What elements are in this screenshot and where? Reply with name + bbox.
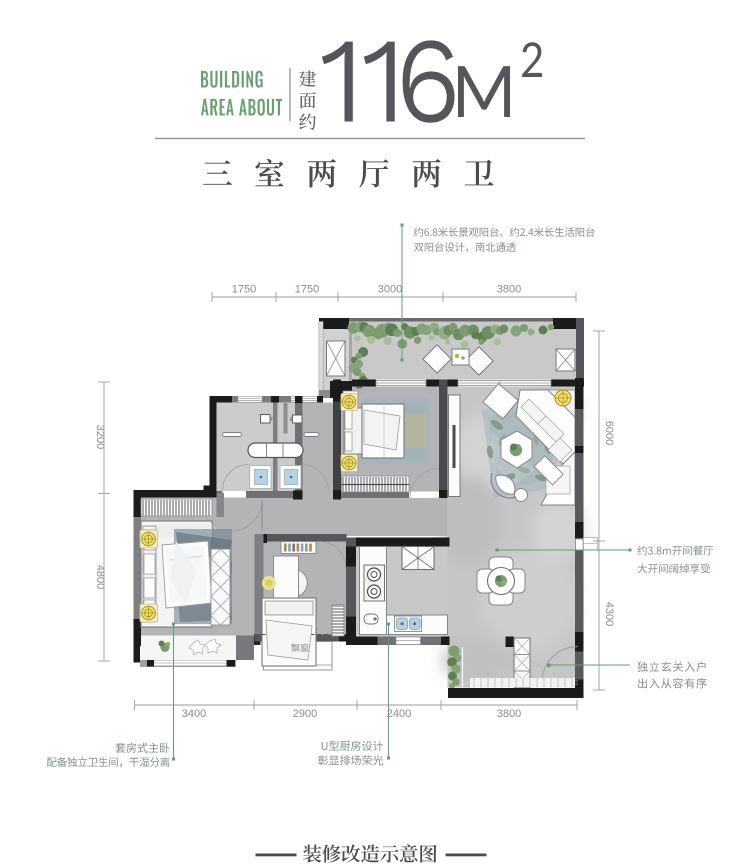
svg-text:1750: 1750 (232, 284, 256, 296)
svg-text:3800: 3800 (497, 708, 521, 720)
svg-text:3200: 3200 (94, 425, 106, 449)
svg-text:4300: 4300 (603, 602, 615, 626)
svg-text:2400: 2400 (387, 708, 411, 720)
svg-text:4800: 4800 (94, 565, 106, 589)
svg-text:1750: 1750 (295, 284, 319, 296)
svg-text:3800: 3800 (497, 284, 521, 296)
svg-text:2900: 2900 (293, 708, 317, 720)
svg-text:3400: 3400 (182, 708, 206, 720)
svg-text:3000: 3000 (378, 284, 402, 296)
svg-text:6000: 6000 (603, 421, 615, 445)
